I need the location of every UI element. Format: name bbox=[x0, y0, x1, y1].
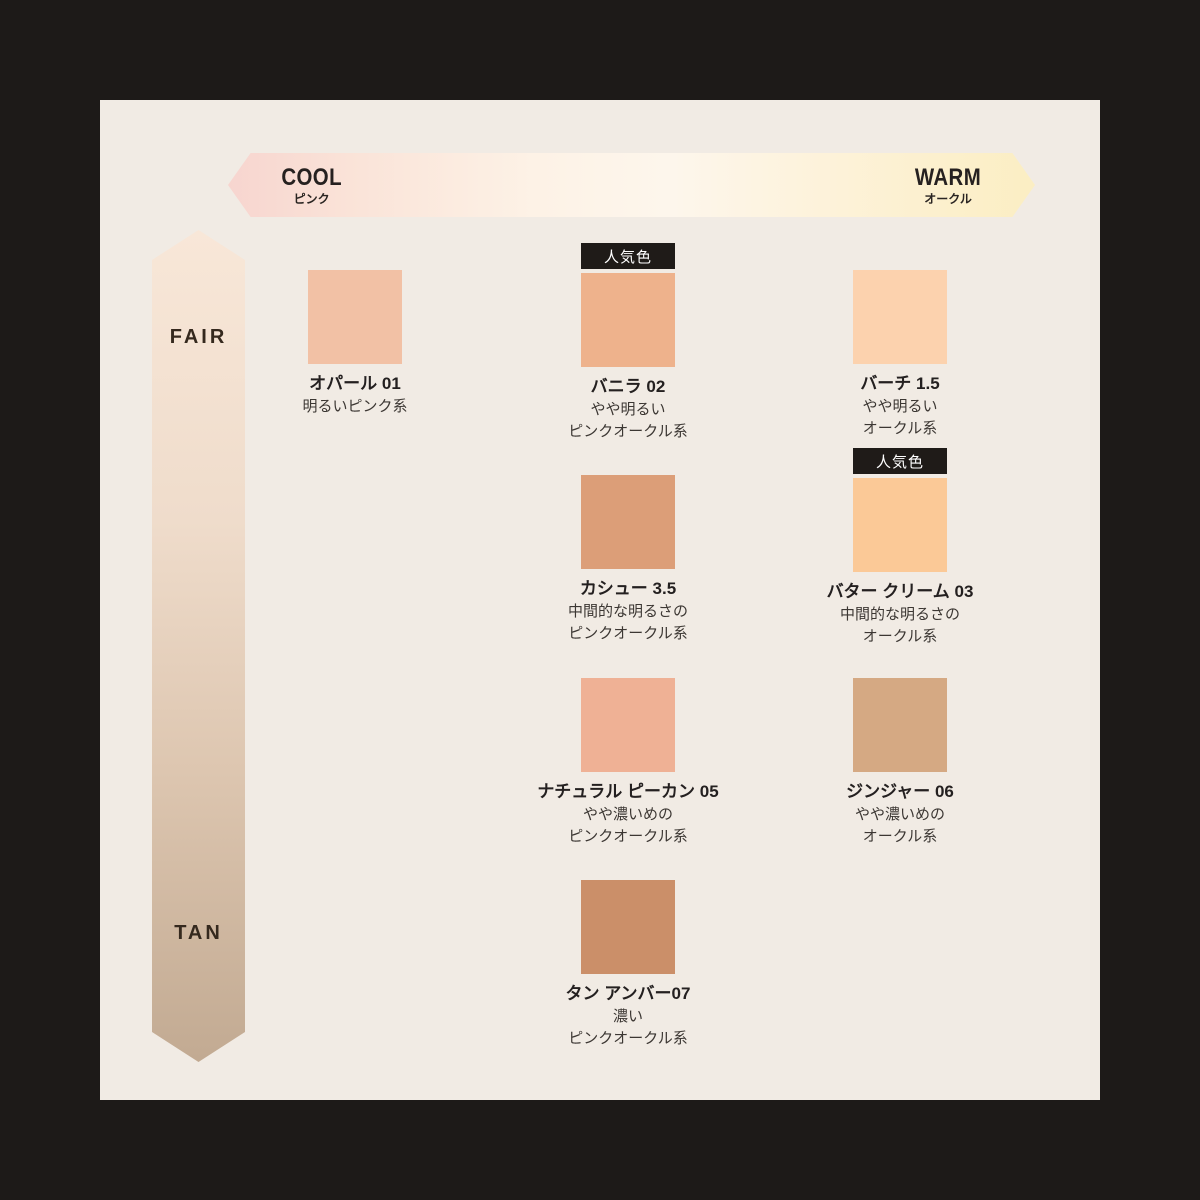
shade-name: バーチ 1.5 bbox=[860, 372, 939, 396]
swatch-cashew-3-5 bbox=[581, 475, 675, 569]
shade-cell-butter-cream-03: 人気色 バター クリーム 03 中間的な明るさのオークル系 bbox=[780, 448, 1020, 648]
shade-name: カシュー 3.5 bbox=[580, 577, 676, 601]
shade-cell-ginger-06: ジンジャー 06 やや濃いめのオークル系 bbox=[780, 678, 1020, 848]
shade-description: やや濃いめのオークル系 bbox=[855, 804, 945, 848]
shade-name: ナチュラル ピーカン 05 bbox=[537, 780, 718, 804]
swatch-opal-01 bbox=[308, 270, 402, 364]
shade-description: やや明るいオークル系 bbox=[862, 396, 937, 440]
shade-name: オパール 01 bbox=[309, 372, 401, 396]
fair-tan-gradient-arrow: FAIR TAN bbox=[152, 230, 245, 1062]
shade-name: ジンジャー 06 bbox=[846, 780, 954, 804]
shade-description: 明るいピンク系 bbox=[302, 396, 407, 418]
popular-badge: 人気色 bbox=[853, 448, 947, 474]
cool-sublabel: ピンク bbox=[294, 193, 330, 206]
shade-cell-vanilla-02: 人気色 バニラ 02 やや明るいピンクオークル系 bbox=[508, 243, 748, 443]
swatch-ginger-06 bbox=[853, 678, 947, 772]
swatch-birch-1-5 bbox=[853, 270, 947, 364]
shade-description: 濃いピンクオークル系 bbox=[568, 1006, 688, 1050]
swatch-natural-pecan-05 bbox=[581, 678, 675, 772]
shade-cell-natural-pecan-05: ナチュラル ピーカン 05 やや濃いめのピンクオークル系 bbox=[508, 678, 748, 848]
fair-label: FAIR bbox=[152, 326, 245, 349]
shade-cell-cashew-3-5: カシュー 3.5 中間的な明るさのピンクオークル系 bbox=[508, 475, 748, 645]
swatch-butter-cream-03 bbox=[853, 478, 947, 572]
warm-sublabel: オークル bbox=[924, 193, 972, 206]
swatch-tan-amber-07 bbox=[581, 880, 675, 974]
shade-cell-tan-amber-07: タン アンバー07 濃いピンクオークル系 bbox=[508, 880, 748, 1050]
shade-description: やや明るいピンクオークル系 bbox=[568, 399, 688, 443]
shade-description: やや濃いめのピンクオークル系 bbox=[568, 804, 688, 848]
shade-name: バニラ 02 bbox=[591, 375, 666, 399]
shade-description: 中間的な明るさのオークル系 bbox=[840, 604, 960, 648]
shade-cell-birch-1-5: バーチ 1.5 やや明るいオークル系 bbox=[780, 270, 1020, 440]
cool-axis-end: COOL ピンク bbox=[276, 165, 347, 206]
cool-label: COOL bbox=[281, 165, 342, 190]
shade-chart-panel: COOL ピンク WARM オークル FAIR TAN オパール 01 明るいピ… bbox=[100, 100, 1100, 1100]
tan-label: TAN bbox=[152, 922, 245, 945]
shade-description: 中間的な明るさのピンクオークル系 bbox=[568, 601, 688, 645]
cool-warm-gradient-arrow: COOL ピンク WARM オークル bbox=[228, 153, 1035, 217]
swatch-vanilla-02 bbox=[581, 273, 675, 367]
shade-cell-opal-01: オパール 01 明るいピンク系 bbox=[235, 270, 475, 418]
shade-name: タン アンバー07 bbox=[566, 982, 691, 1006]
warm-label: WARM bbox=[915, 165, 981, 190]
shade-name: バター クリーム 03 bbox=[827, 580, 974, 604]
warm-axis-end: WARM オークル bbox=[909, 165, 987, 206]
popular-badge: 人気色 bbox=[581, 243, 675, 269]
